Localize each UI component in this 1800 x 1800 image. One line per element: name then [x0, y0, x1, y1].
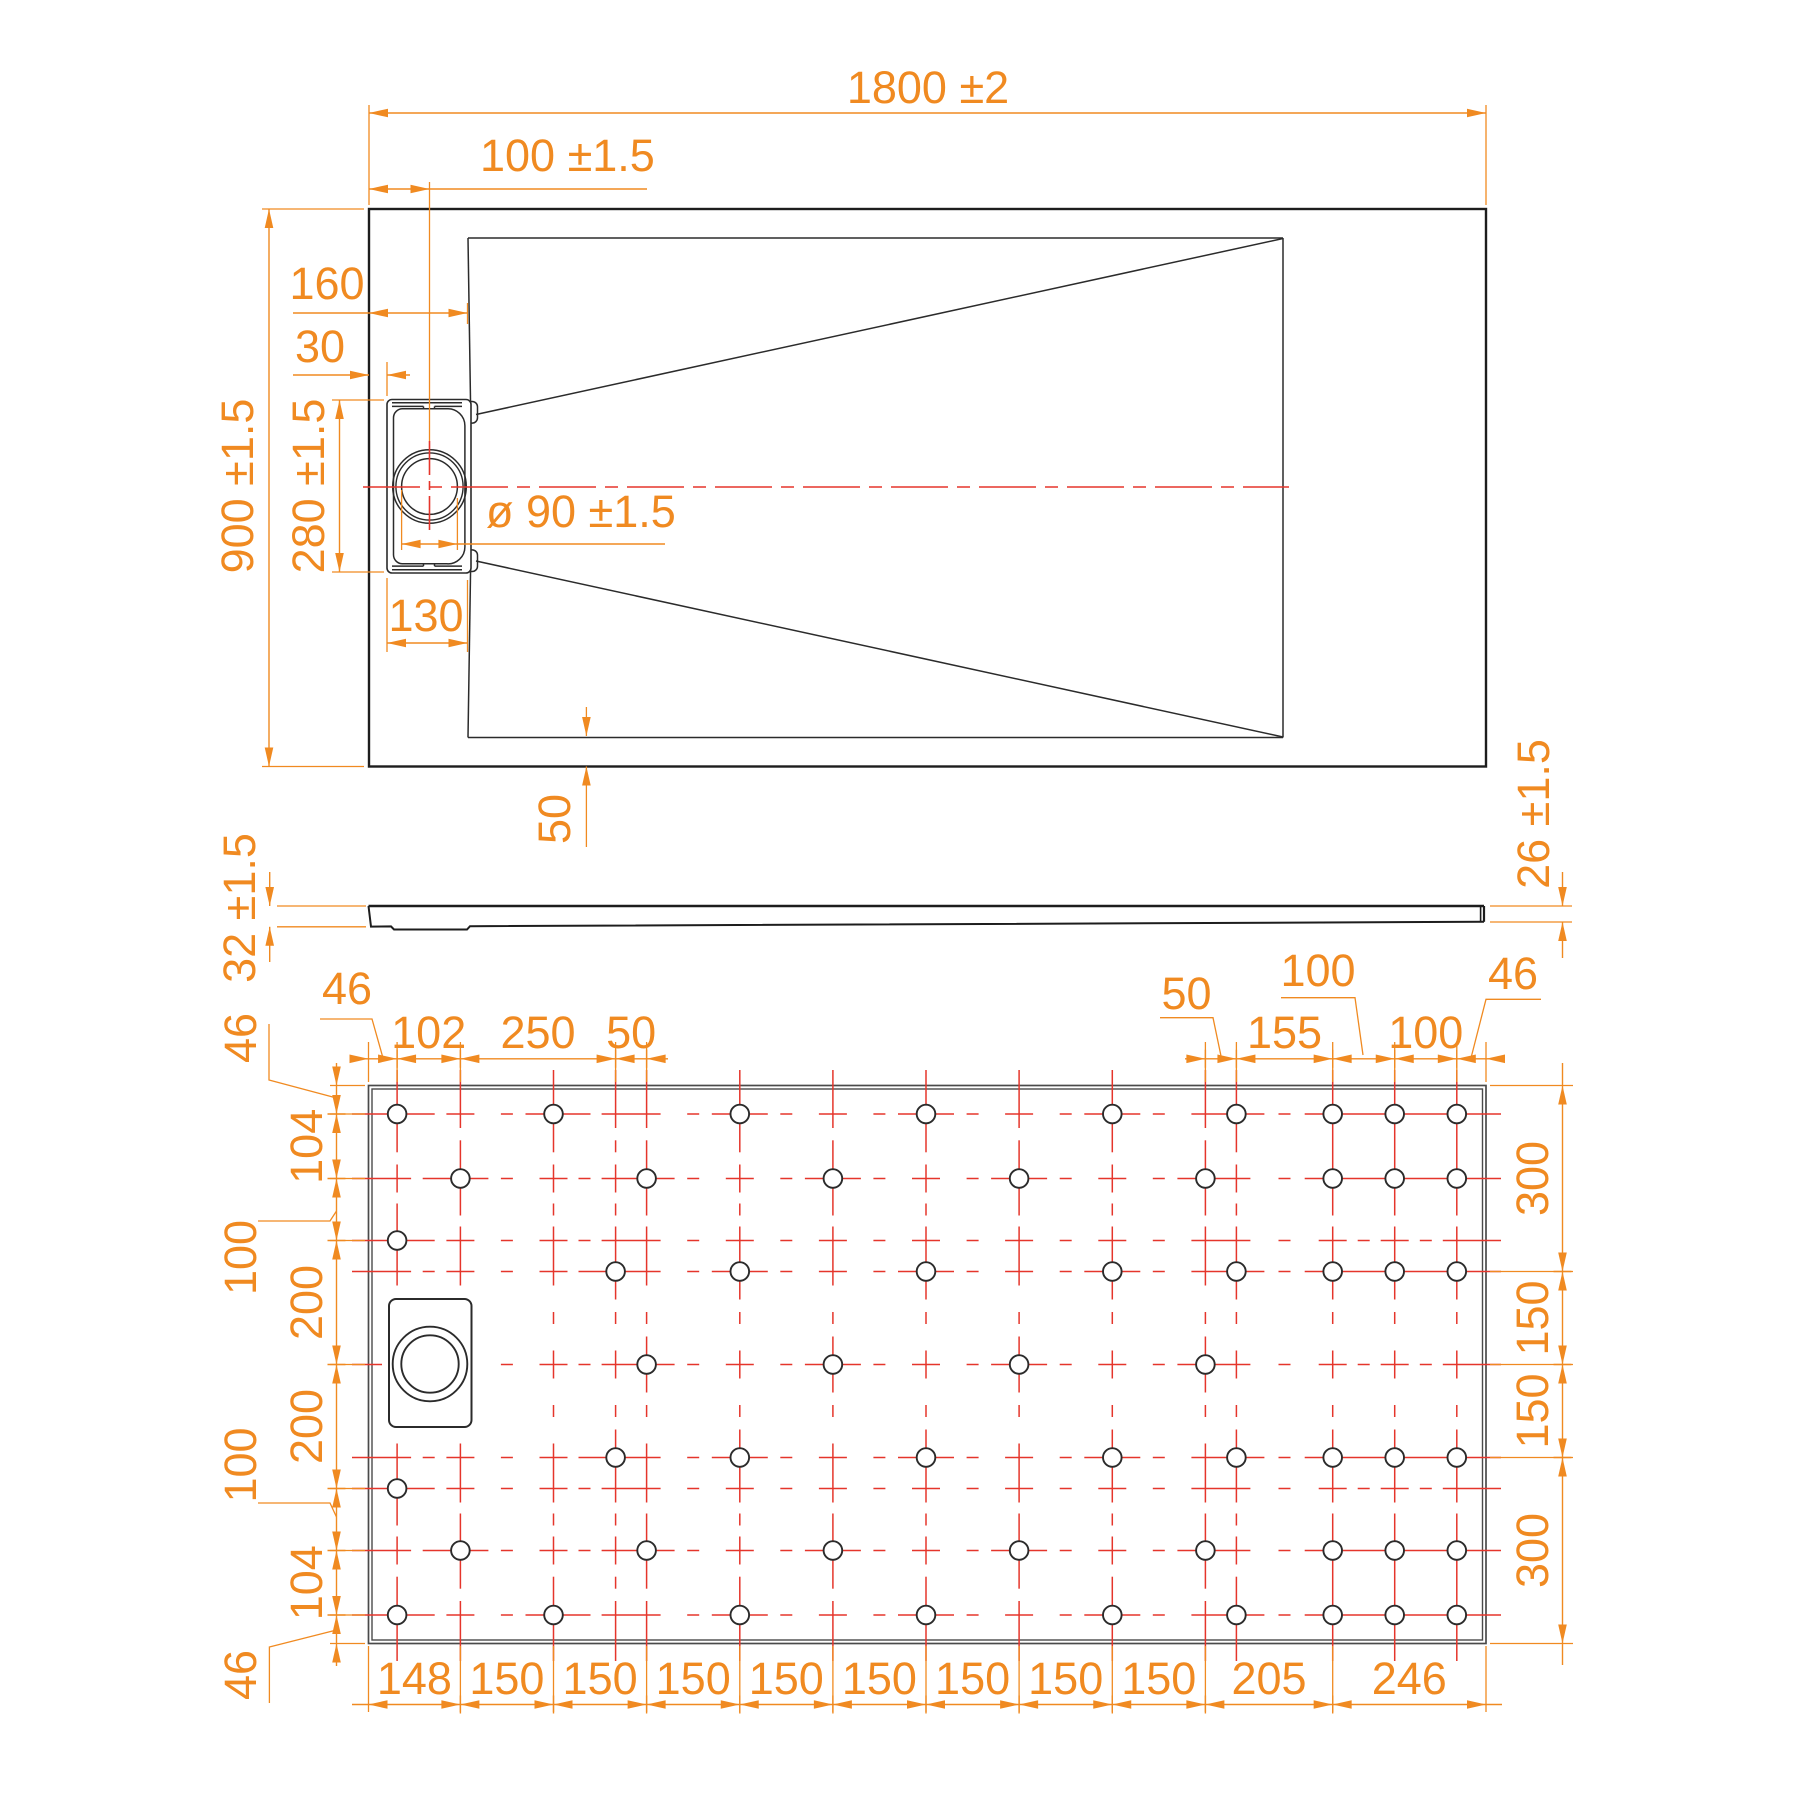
svg-text:50: 50: [1161, 968, 1211, 1019]
svg-text:280 ±1.5: 280 ±1.5: [283, 399, 334, 574]
svg-text:155: 155: [1247, 1007, 1322, 1058]
svg-text:46: 46: [215, 1650, 266, 1700]
svg-text:150: 150: [1028, 1653, 1103, 1704]
svg-text:100: 100: [215, 1220, 266, 1295]
svg-text:300: 300: [1507, 1513, 1558, 1588]
svg-text:100 ±1.5: 100 ±1.5: [480, 130, 655, 181]
svg-text:150: 150: [1507, 1280, 1558, 1355]
svg-text:1800 ±2: 1800 ±2: [847, 62, 1009, 113]
svg-text:46: 46: [1488, 948, 1538, 999]
svg-text:148: 148: [377, 1653, 452, 1704]
svg-text:26 ±1.5: 26 ±1.5: [1508, 739, 1559, 889]
svg-text:150: 150: [935, 1653, 1010, 1704]
svg-text:104: 104: [281, 1545, 332, 1620]
svg-text:102: 102: [391, 1007, 466, 1058]
svg-text:150: 150: [656, 1653, 731, 1704]
svg-text:205: 205: [1231, 1653, 1306, 1704]
svg-text:150: 150: [469, 1653, 544, 1704]
svg-text:32 ±1.5: 32 ±1.5: [214, 833, 265, 983]
svg-text:ø 90 ±1.5: ø 90 ±1.5: [486, 486, 676, 537]
svg-text:30: 30: [295, 321, 345, 372]
svg-text:160: 160: [289, 258, 364, 309]
svg-text:900 ±1.5: 900 ±1.5: [212, 399, 263, 574]
svg-text:300: 300: [1507, 1141, 1558, 1216]
svg-text:200: 200: [281, 1265, 332, 1340]
svg-text:104: 104: [281, 1109, 332, 1184]
svg-text:50: 50: [529, 794, 580, 844]
svg-text:150: 150: [1507, 1373, 1558, 1448]
svg-text:200: 200: [281, 1389, 332, 1464]
svg-text:50: 50: [606, 1007, 656, 1058]
svg-text:246: 246: [1372, 1653, 1447, 1704]
svg-text:150: 150: [563, 1653, 638, 1704]
svg-text:46: 46: [215, 1013, 266, 1063]
svg-text:150: 150: [749, 1653, 824, 1704]
svg-text:130: 130: [388, 590, 463, 641]
svg-text:150: 150: [842, 1653, 917, 1704]
svg-text:250: 250: [500, 1007, 575, 1058]
svg-text:46: 46: [322, 963, 372, 1014]
svg-text:100: 100: [1280, 945, 1355, 996]
svg-text:100: 100: [1388, 1007, 1463, 1058]
svg-text:100: 100: [215, 1427, 266, 1502]
svg-text:150: 150: [1121, 1653, 1196, 1704]
